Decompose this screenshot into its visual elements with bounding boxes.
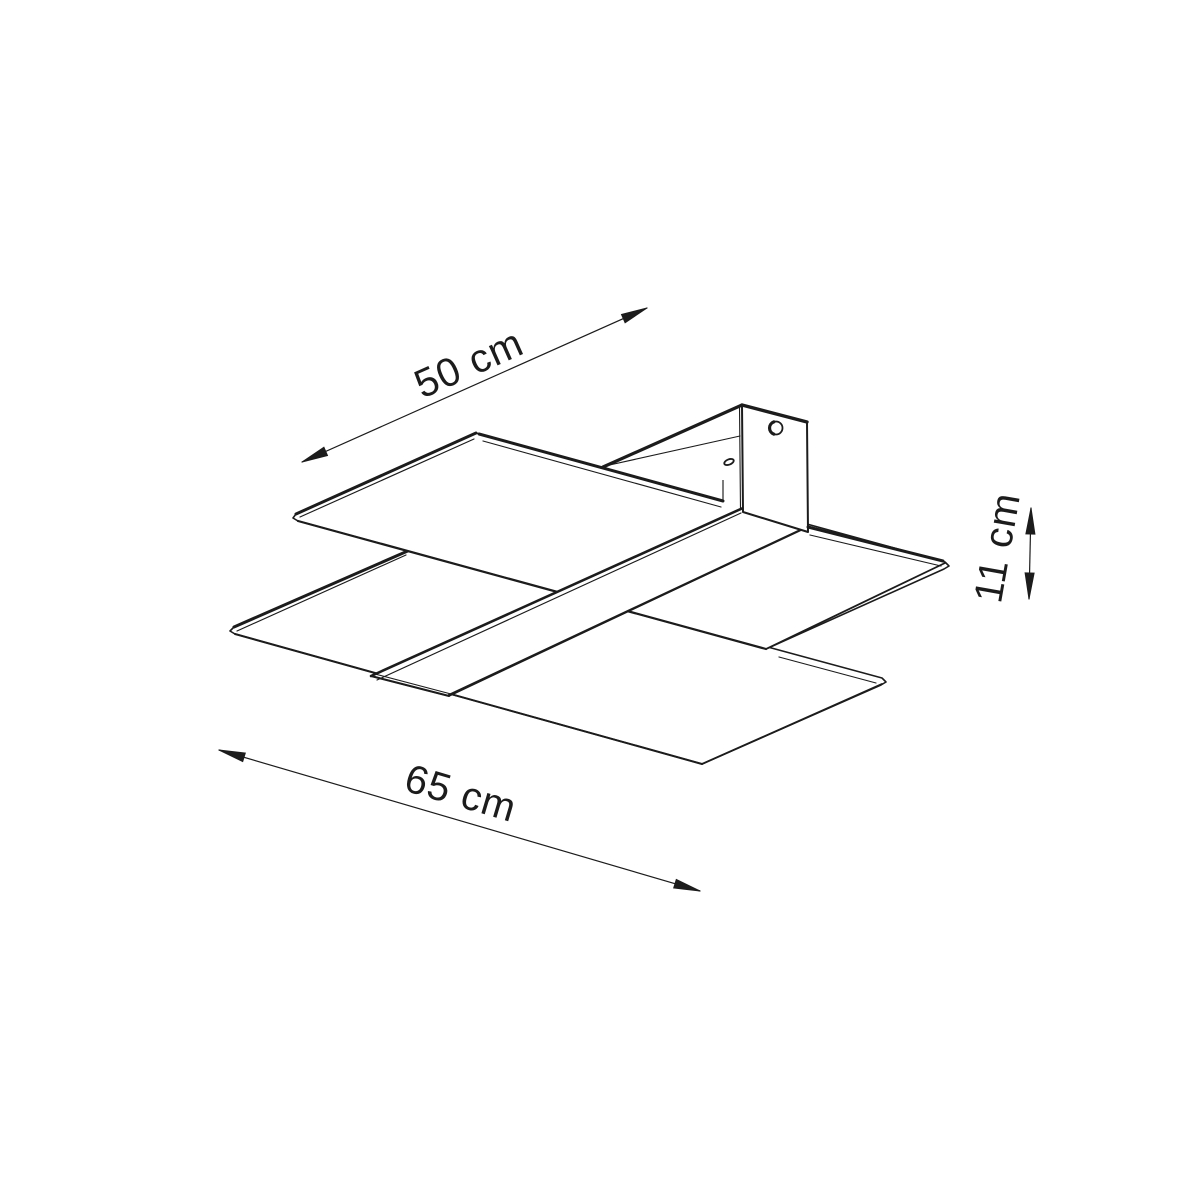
ceiling-cable-hole-icon [723, 458, 734, 467]
dimension-label-width: 65 cm [400, 756, 522, 831]
dimension-label-height: 11 cm [966, 489, 1029, 606]
arrowhead-icon [219, 750, 245, 762]
technical-drawing-page: 50 cm 65 cm 11 cm [0, 0, 1200, 1200]
ceiling-mount-bracket [740, 405, 809, 532]
dimension-height: 11 cm [966, 489, 1035, 606]
arrowhead-icon [1026, 508, 1035, 534]
ceiling-lamp-dimension-diagram: 50 cm 65 cm 11 cm [0, 0, 1200, 1200]
dimension-width: 65 cm [219, 750, 700, 891]
arrowhead-icon [622, 308, 648, 323]
dimension-label-depth: 50 cm [408, 321, 530, 408]
arrowhead-icon [674, 879, 700, 891]
arrowhead-icon [302, 447, 328, 462]
arrowhead-icon [1025, 573, 1034, 599]
ceiling-mount-rear [603, 405, 742, 467]
